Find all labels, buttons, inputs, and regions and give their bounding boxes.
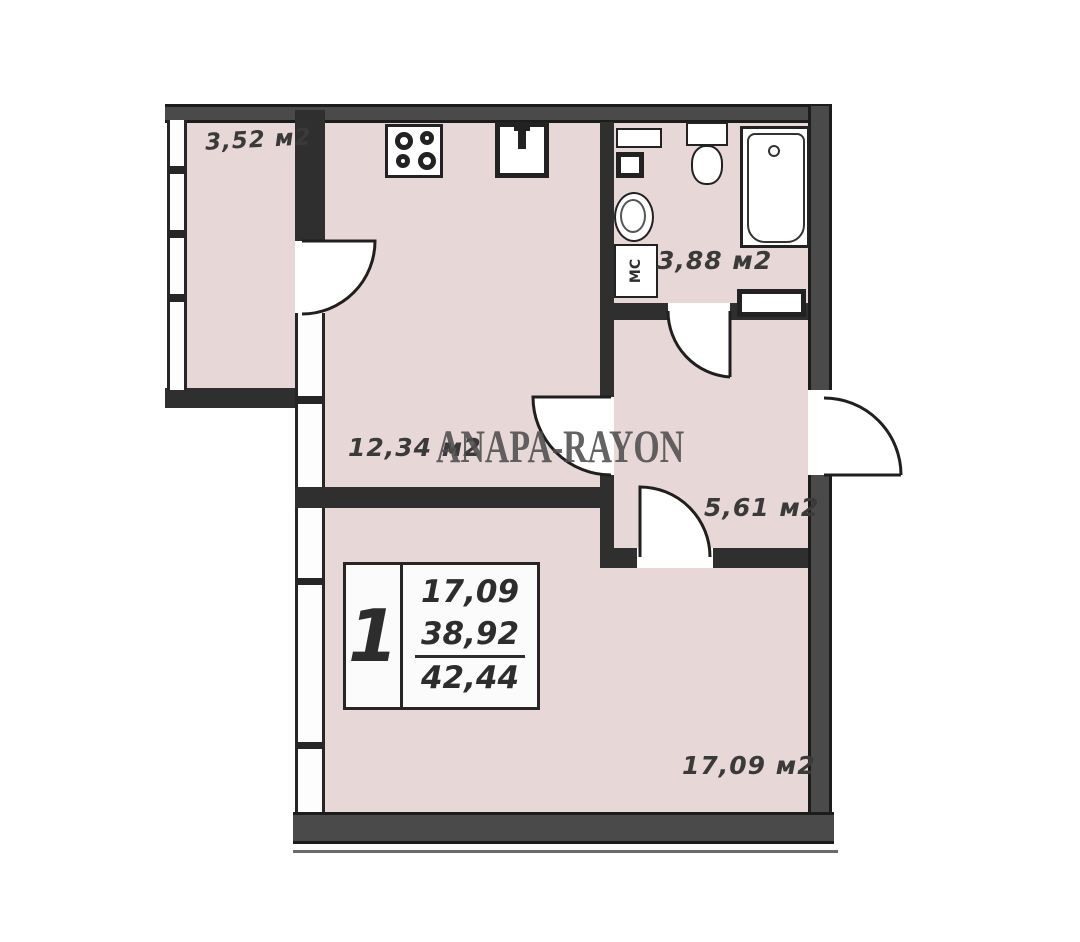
stamp-area-without-balcony: 38,92	[415, 614, 525, 659]
hallway-area-label: 5,61 м2	[704, 493, 819, 522]
balcony-area-label: 3,52 м2	[204, 124, 312, 156]
living-room-area-label: 17,09 м2	[682, 751, 816, 780]
stamp-living-area: 17,09	[421, 572, 519, 614]
apartment-stamp: 1 17,09 38,92 42,44	[343, 562, 540, 710]
floor-plan: МС 3,52 м2 12,34 м2 3,88 м2 5,61 м2 17,0…	[0, 0, 1080, 942]
watermark: ANAPA-RAYON	[436, 420, 684, 474]
stamp-rooms-count: 1	[346, 565, 403, 707]
bathroom-area-label: 3,88 м2	[657, 246, 772, 275]
room-door-arc	[640, 487, 710, 557]
stamp-total-area: 42,44	[421, 658, 519, 700]
balcony-door-arc	[302, 241, 375, 314]
entrance-door-arc	[824, 398, 901, 475]
bathroom-door-arc	[668, 311, 730, 377]
